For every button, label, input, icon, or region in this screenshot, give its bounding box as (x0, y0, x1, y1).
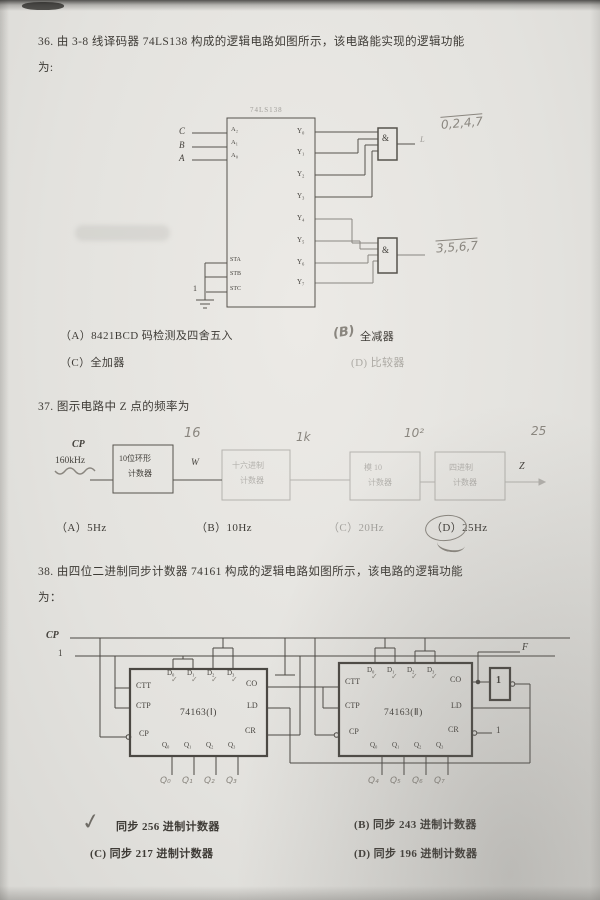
pin-a1: A₁ (231, 139, 238, 146)
pin-y5: Y₅ (297, 236, 305, 244)
counter-box-2 (222, 450, 290, 500)
chip1-q0-pin: Q₀ (162, 741, 170, 749)
pencil-check: ✓ (431, 673, 438, 681)
cp-label: CP (72, 439, 85, 451)
chip1-q2-pin: Q₂ (206, 741, 214, 749)
q38-stem-line2: 为： (38, 592, 62, 605)
chip1-ld-pin: LD (247, 701, 258, 710)
q36-circuit: 74LS138 C B A A₂ A₁ A₀ Y₀ Y₁ Y₂ Y₃ Y₄ Y₅… (0, 95, 600, 315)
scanned-exam-page: 36. 由 3-8 线译码器 74LS138 构成的逻辑电路如图所示，该电路能实… (0, 0, 600, 900)
block2-line1: 十六进制 (232, 461, 264, 470)
chip2-cp-pin: CP (349, 727, 359, 736)
pin-y4: Y₄ (297, 214, 305, 222)
chip2-q2-pin: Q₂ (414, 741, 422, 749)
q36-stem-line2: 为: (38, 62, 54, 75)
pin-y3: Y₃ (297, 192, 305, 200)
q36-option-b-pencil-mark: (B) (332, 325, 355, 341)
and-gate-1-symbol: & (382, 133, 389, 143)
q36-stem-line1: 36. 由 3-8 线译码器 74LS138 构成的逻辑电路如图所示，该电路能实… (38, 36, 465, 49)
z-arrowhead (539, 479, 545, 485)
counter-box-3 (350, 452, 420, 500)
const-one-label: 1 (193, 284, 197, 293)
q37-option-a: （A）5Hz (56, 522, 107, 535)
chip1-cr-pin: CR (245, 726, 256, 735)
pencil-check: ✓ (371, 673, 378, 681)
q38-option-c: (C) 同步 217 进制计数器 (90, 848, 213, 861)
q38-stem-line1: 38. 由四位二进制同步计数器 74161 构成的逻辑电路如图所示，该电路的逻辑… (38, 566, 463, 579)
cp-rail-label: CP (46, 630, 59, 642)
pin-y0: Y₀ (297, 127, 305, 135)
chip1-name: 74163(Ⅰ) (180, 708, 217, 719)
pencil-squiggle (55, 468, 95, 474)
input-label-c: C (179, 126, 185, 136)
q38-option-b: (B) 同步 243 进制计数器 (354, 819, 477, 832)
pin-y6: Y₆ (297, 258, 305, 266)
pencil-check: ✓ (231, 676, 238, 684)
handwritten-q3: Q₃ (226, 777, 237, 786)
pin-y1: Y₁ (297, 148, 305, 156)
q37-stem: 37. 图示电路中 Z 点的频率为 (38, 401, 190, 414)
q38-option-a-pencil-mark: ✓ (80, 811, 102, 836)
chip2-ctp-pin: CTP (345, 701, 360, 710)
handwritten-q4: Q₄ (368, 777, 379, 786)
chip2-cr-pin: CR (448, 725, 459, 734)
point-z-label: Z (519, 461, 525, 473)
pencil-swoosh-option-d (436, 534, 466, 554)
q37-option-c: （C）20Hz (328, 522, 384, 535)
block1-line1: 10位环形 (119, 454, 151, 463)
q38-option-d: (D) 同步 196 进制计数器 (354, 848, 477, 861)
handwritten-16: 16 (184, 427, 201, 440)
handwritten-minterms-1: 0,2,4,7 (441, 115, 484, 131)
block4-line2: 计数器 (453, 478, 477, 487)
pencil-check: ✓ (211, 676, 218, 684)
chip1-ctt-pin: CTT (136, 681, 151, 690)
cp-frequency: 160kHz (55, 456, 85, 467)
inverter-gate-symbol: 1 (496, 675, 501, 687)
pin-y2: Y₂ (297, 170, 305, 178)
and-gate-2-symbol: & (382, 245, 389, 255)
chip1-q1-pin: Q₁ (184, 741, 192, 749)
one-rail-label: 1 (58, 648, 63, 658)
q36-option-d: (D) 比较器 (351, 357, 405, 370)
block1-line2: 计数器 (128, 469, 152, 478)
block3-line1: 模 10 (364, 463, 382, 472)
input-label-a: A (179, 153, 185, 163)
pin-a2: A₂ (231, 126, 238, 133)
handwritten-q6: Q₆ (412, 777, 423, 786)
pin-stc: STC (230, 286, 241, 293)
cr-const-one-label: 1 (496, 725, 501, 735)
q37-option-b: （B）10Hz (196, 522, 252, 535)
handwritten-1k: 1k (296, 431, 311, 443)
handwritten-q1: Q₁ (182, 777, 193, 786)
chip2-co-pin: CO (450, 675, 461, 684)
page-content: 36. 由 3-8 线译码器 74LS138 构成的逻辑电路如图所示，该电路能实… (0, 0, 600, 900)
pin-y7: Y₇ (297, 278, 305, 286)
pencil-check: ✓ (391, 673, 398, 681)
input-label-b: B (179, 140, 185, 150)
q38-wires (0, 615, 600, 820)
chip-label-74ls138: 74LS138 (250, 106, 283, 114)
q36-option-c: （C）全加器 (60, 357, 125, 370)
chip2-ld-pin: LD (451, 701, 462, 710)
pin-a0: A₀ (231, 152, 238, 159)
block4-line1: 四进制 (449, 463, 473, 472)
chip1-ctp-pin: CTP (136, 701, 151, 710)
q36-option-b: 全减器 (360, 331, 394, 344)
chip1-q3-pin: Q₃ (228, 741, 236, 749)
q38-circuit: CP 1 CTT CTP CP 74163(Ⅰ) D₀ D₁ D₂ D₃ ✓ ✓… (0, 615, 600, 820)
q37-circuit: CP 160kHz 10位环形 计数器 W 16 十六进制 计数器 1k 模 1… (0, 425, 600, 525)
block2-line2: 计数器 (240, 476, 264, 485)
chip2-name: 74163(Ⅱ) (384, 708, 423, 719)
ground-symbol (196, 300, 214, 308)
handwritten-minterms-2: 3,5,6,7 (436, 240, 479, 255)
pin-stb: STB (230, 271, 241, 278)
and-gate-2-box (378, 238, 397, 273)
pencil-check: ✓ (171, 676, 178, 684)
point-w-label: W (191, 458, 199, 469)
gate1-output-label: L (420, 135, 425, 145)
handwritten-q7: Q₇ (434, 777, 445, 786)
chip2-q1-pin: Q₁ (392, 741, 400, 749)
handwritten-100: 10² (404, 427, 424, 439)
q38-option-a: 同步 256 进制计数器 (116, 821, 220, 834)
output-f-label: F (522, 642, 528, 654)
chip1-cp-pin: CP (139, 729, 149, 738)
handwritten-q5: Q₅ (390, 777, 401, 786)
handwritten-25: 25 (531, 425, 546, 437)
chip2-ctt-pin: CTT (345, 677, 360, 686)
pencil-check: ✓ (191, 676, 198, 684)
pencil-check: ✓ (411, 673, 418, 681)
q36-option-a: （A）8421BCD 码检测及四舍五入 (60, 330, 233, 343)
block3-line2: 计数器 (368, 478, 392, 487)
chip2-q0-pin: Q₀ (370, 741, 378, 749)
chip1-co-pin: CO (246, 679, 257, 688)
chip2-q3-pin: Q₃ (436, 741, 444, 749)
handwritten-q0: Q₀ (160, 777, 171, 786)
handwritten-q2: Q₂ (204, 777, 215, 786)
pin-sta: STA (230, 257, 241, 264)
counter-box-4 (435, 452, 505, 500)
